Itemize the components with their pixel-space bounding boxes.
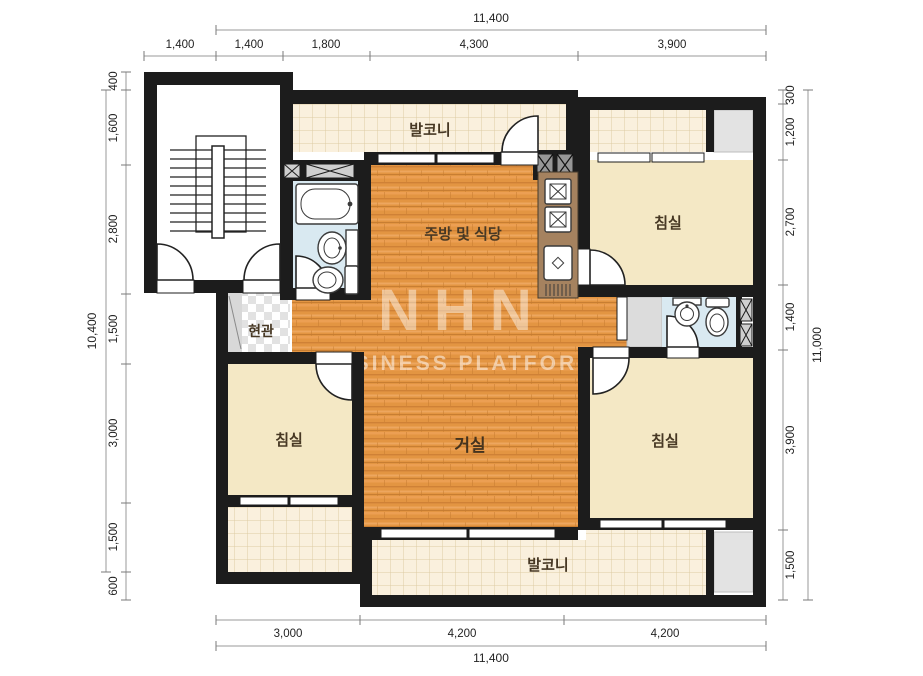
kitchen-window (437, 154, 494, 163)
dim-left-seg-6: 600 (108, 576, 120, 595)
dim-left-total: 10,400 (85, 312, 99, 349)
utility-gray-bottom-right (714, 532, 753, 592)
label-balcony-top: 발코니 (409, 122, 450, 139)
dim-left-seg-0: 400 (108, 71, 120, 90)
dim-right-seg-1: 1,200 (785, 118, 797, 147)
bathtub-icon (296, 184, 358, 224)
bedroom1-window (598, 153, 650, 162)
dim-bottom-seg-0: 3,000 (274, 628, 303, 640)
bathroom1-vent-icon (284, 164, 354, 178)
label-bedroom-bottom-right: 침실 (651, 433, 679, 450)
balcony-left-floor (228, 507, 352, 572)
bedroom3-window (600, 520, 662, 528)
label-bedroom-top-right: 침실 (654, 215, 682, 232)
living-window (381, 529, 467, 538)
balcony-bottom-floor-strip (586, 530, 706, 542)
living-window (469, 529, 555, 538)
dimension-bottom: 3,000 4,200 4,200 11,400 (216, 615, 766, 665)
dim-right-seg-4: 3,900 (785, 426, 797, 455)
dim-top-seg-3: 4,300 (460, 39, 489, 51)
watermark-logo: NHN (378, 278, 546, 343)
dim-top-seg-0: 1,400 (166, 39, 195, 51)
utility-gray-top-right (714, 110, 753, 152)
label-living-room: 거실 (454, 436, 485, 455)
dim-top-total: 11,400 (473, 11, 509, 25)
toilet-icon (706, 298, 729, 336)
toilet-icon (313, 266, 358, 294)
dim-bottom-seg-1: 4,200 (448, 628, 477, 640)
stair-stringer (212, 146, 224, 238)
kitchen-window (378, 154, 435, 163)
utility-gray-mid (627, 297, 662, 347)
label-bedroom-left: 침실 (275, 432, 303, 449)
dim-left-seg-3: 1,500 (108, 315, 120, 344)
dim-left-seg-5: 1,500 (108, 523, 120, 552)
washbasin-icon (673, 298, 701, 326)
bedroom3-window (664, 520, 726, 528)
dim-left-seg-2: 2,800 (108, 215, 120, 244)
label-balcony-bottom: 발코니 (527, 557, 568, 574)
dimension-right: 300 1,200 2,700 1,400 3,900 1,500 11,000 (778, 85, 824, 600)
dimension-left: 10,400 400 1,600 2,800 1,500 3,000 1,500… (85, 71, 131, 600)
dim-right-seg-5: 1,500 (785, 551, 797, 580)
dim-top-seg-4: 3,900 (658, 39, 687, 51)
bedroom1-window (652, 153, 704, 162)
dim-right-seg-0: 300 (785, 85, 797, 104)
washbasin-icon (318, 230, 358, 266)
bedroom1-balcony-floor (590, 110, 706, 152)
dim-top-seg-1: 1,400 (235, 39, 264, 51)
bedroom2-window (290, 497, 338, 505)
dim-right-seg-2: 2,700 (785, 208, 797, 237)
dimension-top: 11,400 1,400 1,400 1,800 4,300 3,900 (144, 11, 766, 61)
dim-right-total: 11,000 (810, 327, 824, 363)
bedroom2-window (240, 497, 288, 505)
dim-left-seg-4: 3,000 (108, 419, 120, 448)
dim-left-seg-1: 1,600 (108, 114, 120, 143)
entrance-closet (228, 293, 242, 352)
label-kitchen-dining: 주방 및 식당 (424, 225, 502, 243)
label-entrance: 현관 (248, 323, 274, 339)
dim-bottom-seg-2: 4,200 (651, 628, 680, 640)
dim-top-seg-2: 1,800 (312, 39, 341, 51)
dim-right-seg-3: 1,400 (785, 303, 797, 332)
floor-plan: NHN BUSINESS PLATFORM (0, 0, 923, 676)
kitchen-counter (538, 172, 578, 298)
dim-bottom-total: 11,400 (473, 651, 509, 665)
